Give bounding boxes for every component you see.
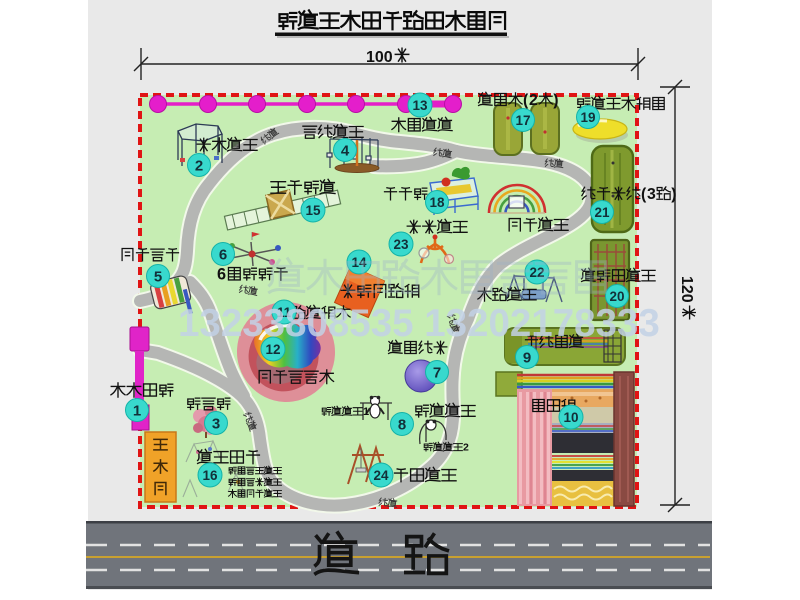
svg-text:13233808535 13202178333: 13233808535 13202178333 <box>178 302 660 345</box>
svg-text:9: 9 <box>523 349 531 366</box>
svg-text:1: 1 <box>363 406 369 418</box>
svg-text:2: 2 <box>463 442 469 454</box>
svg-text:3: 3 <box>212 415 220 432</box>
svg-text:120: 120 <box>678 276 695 303</box>
svg-text:23: 23 <box>393 237 409 252</box>
svg-text:3: 3 <box>647 186 656 203</box>
svg-text:100: 100 <box>366 49 393 66</box>
svg-text:18: 18 <box>429 195 445 210</box>
svg-text:6: 6 <box>219 246 227 263</box>
svg-text:1: 1 <box>133 402 141 419</box>
svg-text:8: 8 <box>398 416 406 433</box>
svg-text:7: 7 <box>433 364 441 381</box>
svg-text:4: 4 <box>341 142 350 159</box>
svg-text:2: 2 <box>195 157 203 174</box>
svg-text:): ) <box>553 92 558 109</box>
svg-text:): ) <box>671 186 676 203</box>
svg-text:24: 24 <box>373 468 389 483</box>
svg-text:5: 5 <box>154 268 162 285</box>
svg-text:17: 17 <box>515 113 530 128</box>
svg-text:19: 19 <box>580 110 595 125</box>
svg-text:15: 15 <box>305 203 321 218</box>
svg-text:21: 21 <box>594 205 610 220</box>
svg-text:2: 2 <box>529 92 538 109</box>
svg-text:6: 6 <box>217 265 226 283</box>
svg-text:10: 10 <box>563 410 578 425</box>
svg-text:16: 16 <box>202 468 218 483</box>
svg-text:13: 13 <box>412 98 428 113</box>
